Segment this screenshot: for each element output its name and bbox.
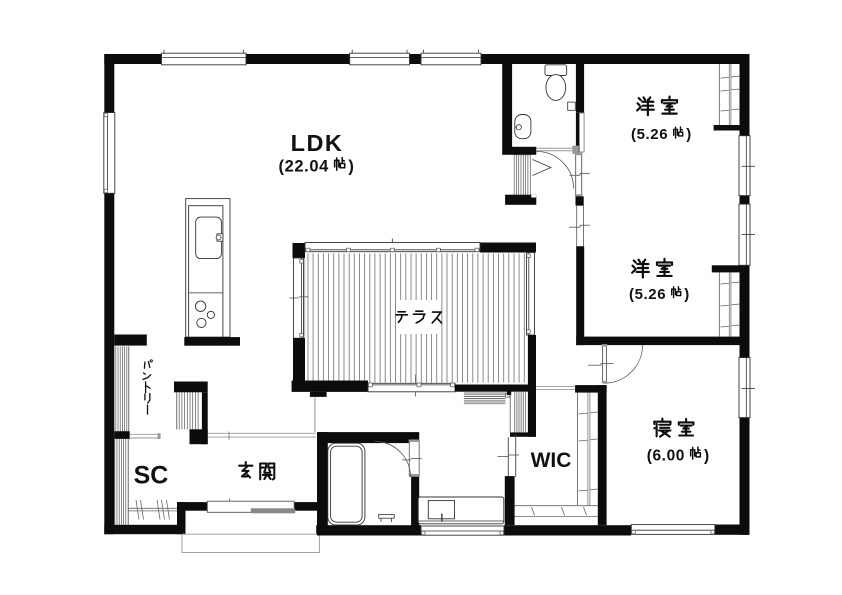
svg-text:(5.26: (5.26 [629,286,666,303]
svg-text:): ) [686,126,691,143]
svg-text:): ) [704,447,709,464]
svg-text:SC: SC [134,461,169,489]
svg-text:WIC: WIC [531,449,572,472]
svg-text:(22.04: (22.04 [279,157,330,175]
svg-text:LDK: LDK [291,130,344,156]
svg-text:(5.26: (5.26 [631,126,668,143]
svg-text:): ) [684,286,689,303]
svg-text:(6.00: (6.00 [647,447,685,464]
svg-text:): ) [348,157,354,175]
